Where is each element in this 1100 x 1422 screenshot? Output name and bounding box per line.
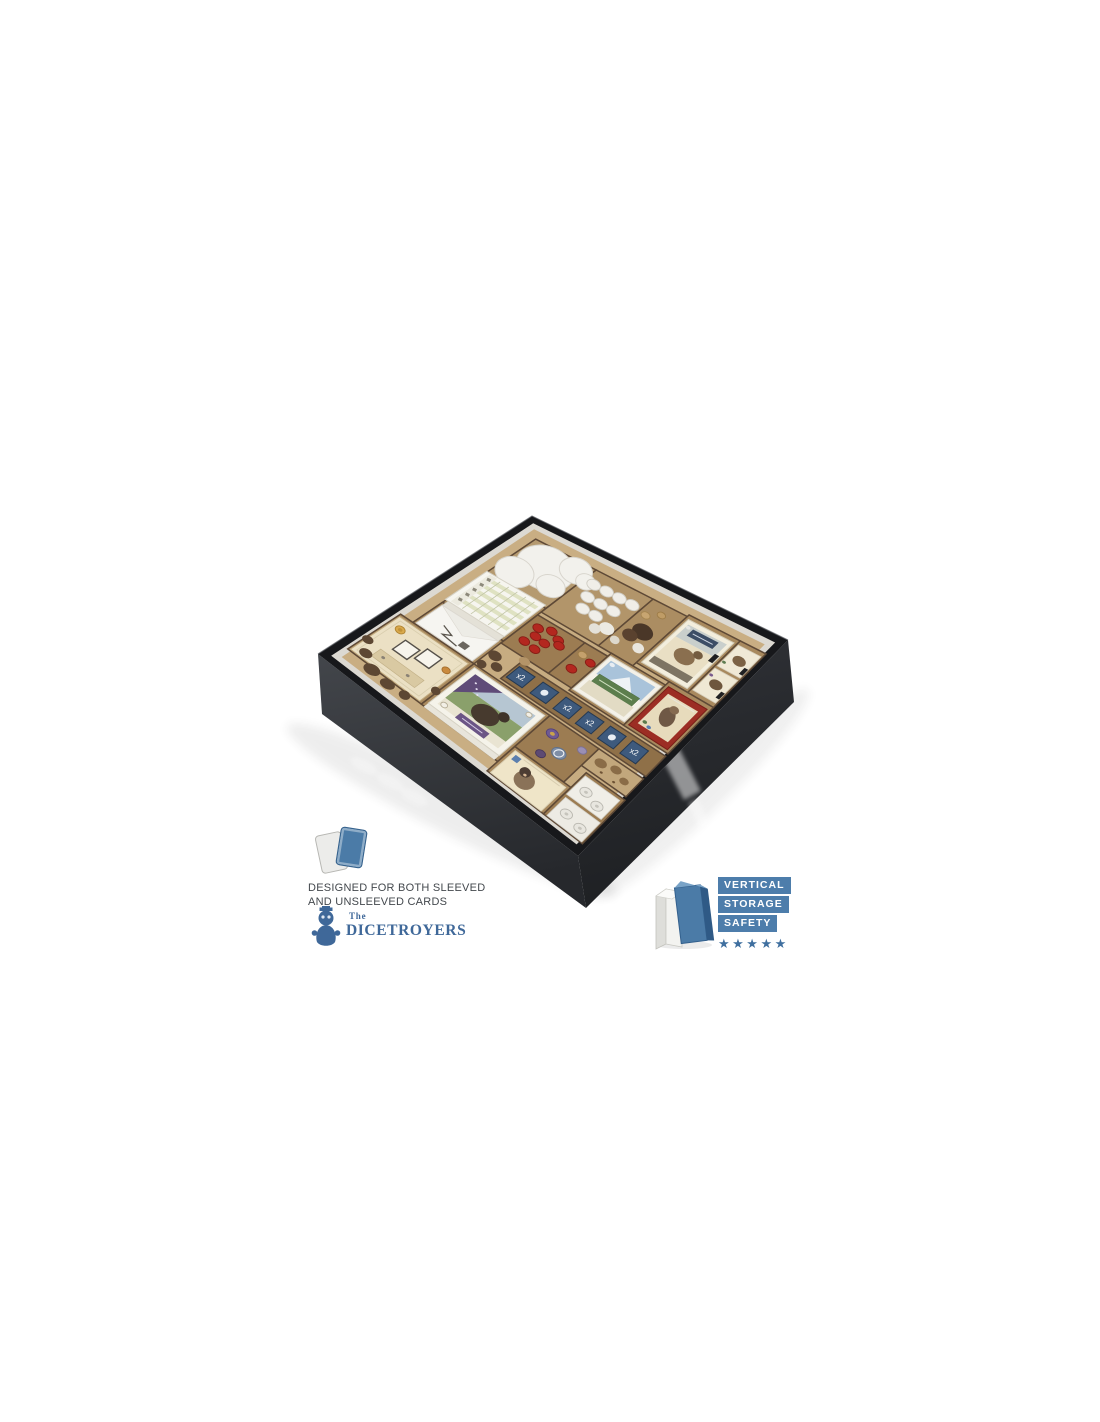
sleeved-card-icon bbox=[335, 826, 368, 869]
brand-prefix: The bbox=[349, 911, 466, 921]
sleeve-info-text: DESIGNED FOR BOTH SLEEVED AND UNSLEEVED … bbox=[308, 881, 508, 909]
vertical-box-icon bbox=[650, 870, 716, 950]
five-stars-rating: ★★★★★ bbox=[718, 936, 791, 952]
brand-name: DICETROYERS bbox=[346, 922, 466, 940]
vss-label-vertical: VERTICAL bbox=[718, 877, 791, 894]
dice-monster-icon bbox=[311, 906, 341, 948]
vertical-storage-labels: VERTICAL STORAGE SAFETY ★★★★★ bbox=[718, 870, 791, 952]
sleeve-info-line1: DESIGNED FOR BOTH SLEEVED bbox=[308, 881, 508, 895]
sleeved-cards-icon bbox=[310, 824, 384, 874]
brand-logo: The DICETROYERS bbox=[311, 906, 466, 948]
brand-text: The DICETROYERS bbox=[346, 906, 466, 940]
vertical-storage-badge: VERTICAL STORAGE SAFETY ★★★★★ bbox=[650, 870, 791, 952]
vss-label-storage: STORAGE bbox=[718, 896, 789, 913]
product-image-canvas: x2x2x2x2 DESIGNED FOR BOTH SLEEVED AND U… bbox=[0, 0, 1100, 1422]
sleeved-cards-badge: DESIGNED FOR BOTH SLEEVED AND UNSLEEVED … bbox=[308, 824, 508, 909]
product-photo: x2x2x2x2 bbox=[0, 0, 1100, 1422]
vss-label-safety: SAFETY bbox=[718, 915, 777, 932]
